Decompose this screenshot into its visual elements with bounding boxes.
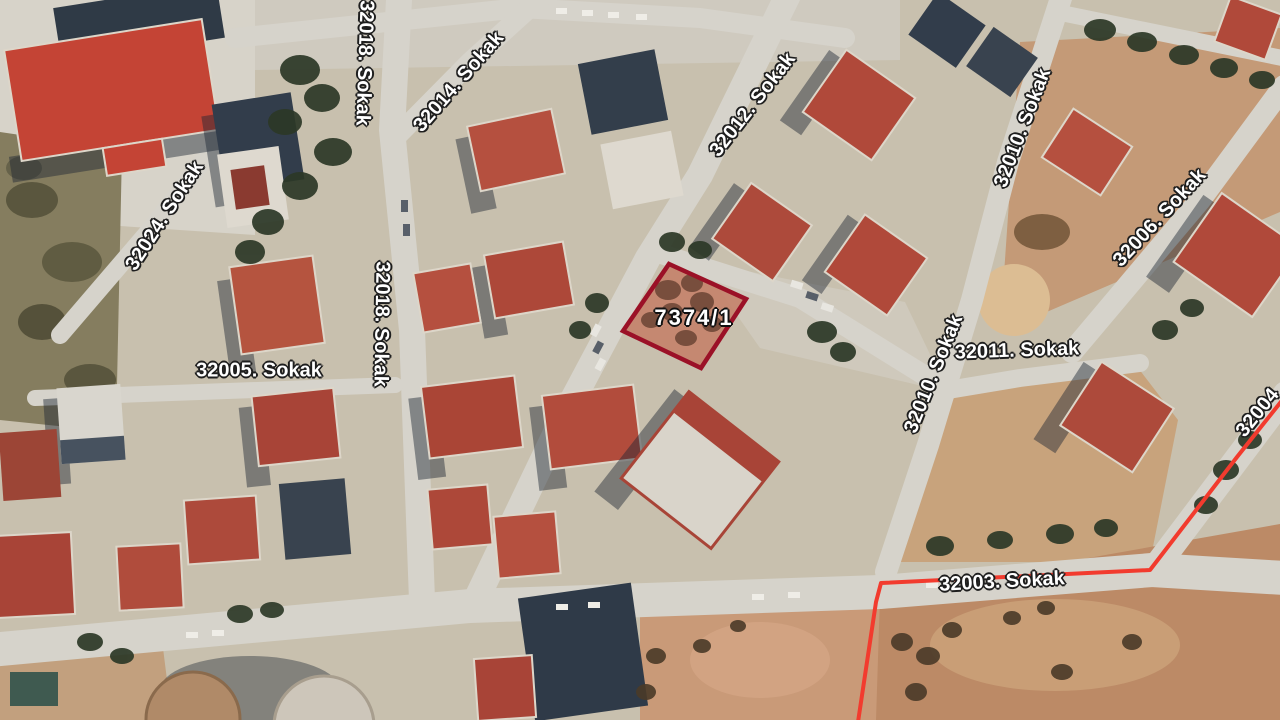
satellite-imagery: [0, 0, 1280, 720]
street-label-32018-north: 32018. Sokak: [350, 0, 377, 126]
street-label-32011: 32011. Sokak: [954, 337, 1079, 364]
street-label-32005: 32005. Sokak: [196, 360, 322, 383]
satellite-map[interactable]: 32018. Sokak 32014. Sokak 32012. Sokak 3…: [0, 0, 1280, 720]
parcel-label: 7374/1: [654, 305, 733, 331]
street-label-32018-mid: 32018. Sokak: [368, 261, 393, 387]
